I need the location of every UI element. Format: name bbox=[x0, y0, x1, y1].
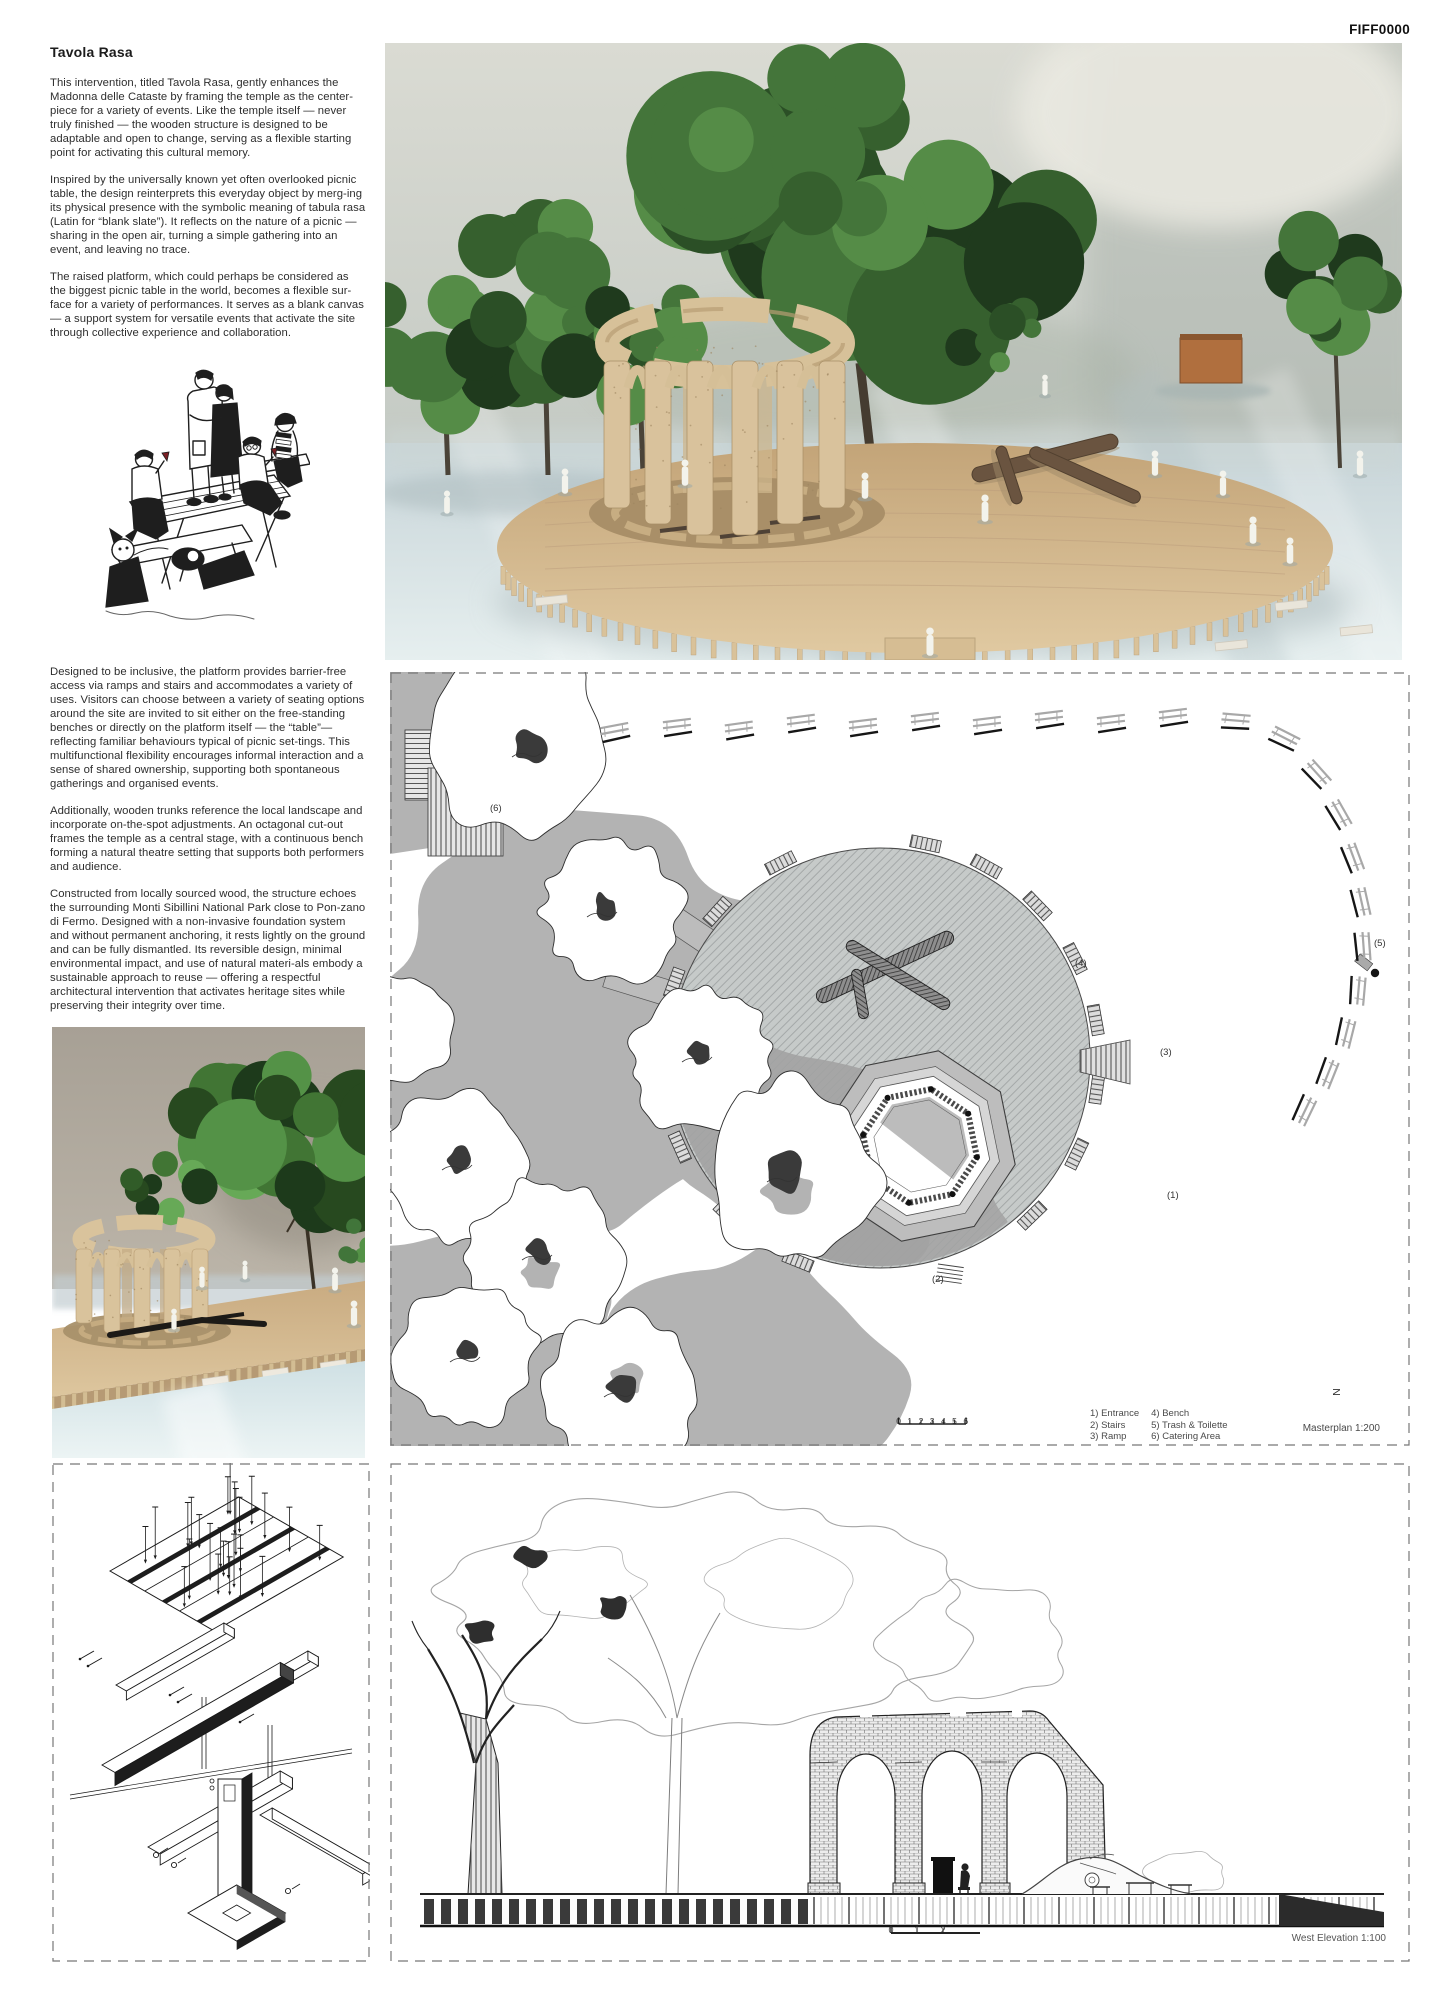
plan-label-bench: (4) bbox=[1075, 958, 1087, 969]
plan-scalebar: 0 1 2 3 4 5 6 bbox=[893, 1416, 971, 1426]
north-indicator: N bbox=[1330, 1388, 1342, 1396]
elevation-scalebar: 0 1 2 bbox=[878, 1925, 956, 1935]
plan-label-trash: (5) bbox=[1374, 938, 1386, 949]
model-photo-detail bbox=[52, 1027, 365, 1458]
legend-item: 1) Entrance bbox=[1090, 1408, 1139, 1420]
legend-item: 2) Stairs bbox=[1090, 1420, 1139, 1432]
plan-scalebar-ruler bbox=[893, 1416, 973, 1425]
plan-label-ramp: (3) bbox=[1160, 1047, 1172, 1058]
plan-caption: Masterplan 1:200 bbox=[1246, 1423, 1380, 1434]
article-paragraph: Inspired by the universally known yet of… bbox=[50, 173, 366, 257]
article-paragraph: This intervention, titled Tavola Rasa, g… bbox=[50, 76, 366, 160]
legend-item: 3) Ramp bbox=[1090, 1431, 1139, 1443]
elevation-caption: West Elevation 1:100 bbox=[1240, 1933, 1386, 1944]
article-paragraph: Designed to be inclusive, the platform p… bbox=[50, 665, 366, 791]
west-elevation-drawing bbox=[390, 1463, 1410, 1962]
model-photo-main-render bbox=[385, 43, 1402, 660]
model-photo-main bbox=[385, 43, 1402, 660]
plan-label-stairs: (2) bbox=[932, 1274, 944, 1285]
picnic-sketch-drawing bbox=[92, 353, 310, 625]
construction-detail-drawing bbox=[52, 1463, 370, 1962]
poster-board: FIFF0000 Tavola Rasa This intervention, … bbox=[0, 0, 1440, 2000]
legend-item: 6) Catering Area bbox=[1151, 1431, 1227, 1443]
text-column: Tavola Rasa This intervention, titled Ta… bbox=[50, 44, 366, 1026]
masterplan-drawing bbox=[390, 672, 1410, 1446]
page-title: Tavola Rasa bbox=[50, 44, 366, 60]
board-code: FIFF0000 bbox=[1250, 22, 1410, 37]
west-elevation-panel: 0 1 2 West Elevation 1:100 bbox=[390, 1463, 1410, 1962]
article-paragraph: Additionally, wooden trunks reference th… bbox=[50, 804, 366, 874]
legend-item: 4) Bench bbox=[1151, 1408, 1227, 1420]
model-photo-detail-render bbox=[52, 1027, 365, 1458]
masterplan-panel: (1) (2) (3) (4) (5) (6) 1) Entrance 2) S… bbox=[390, 672, 1410, 1446]
plan-label-catering: (6) bbox=[490, 803, 502, 814]
plan-legend-column-1: 1) Entrance 2) Stairs 3) Ramp bbox=[1090, 1408, 1139, 1443]
plan-legend: 1) Entrance 2) Stairs 3) Ramp 4) Bench 5… bbox=[1090, 1408, 1228, 1443]
picnic-table-illustration bbox=[92, 353, 310, 625]
article-paragraph: Constructed from locally sourced wood, t… bbox=[50, 887, 366, 1013]
plan-label-entrance: (1) bbox=[1167, 1190, 1179, 1201]
article-paragraph: The raised platform, which could perhaps… bbox=[50, 270, 366, 340]
construction-detail-panel bbox=[52, 1463, 370, 1962]
legend-item: 5) Trash & Toilette bbox=[1151, 1420, 1227, 1432]
elevation-scalebar-ruler bbox=[878, 1925, 988, 1935]
plan-legend-column-2: 4) Bench 5) Trash & Toilette 6) Catering… bbox=[1151, 1408, 1227, 1443]
